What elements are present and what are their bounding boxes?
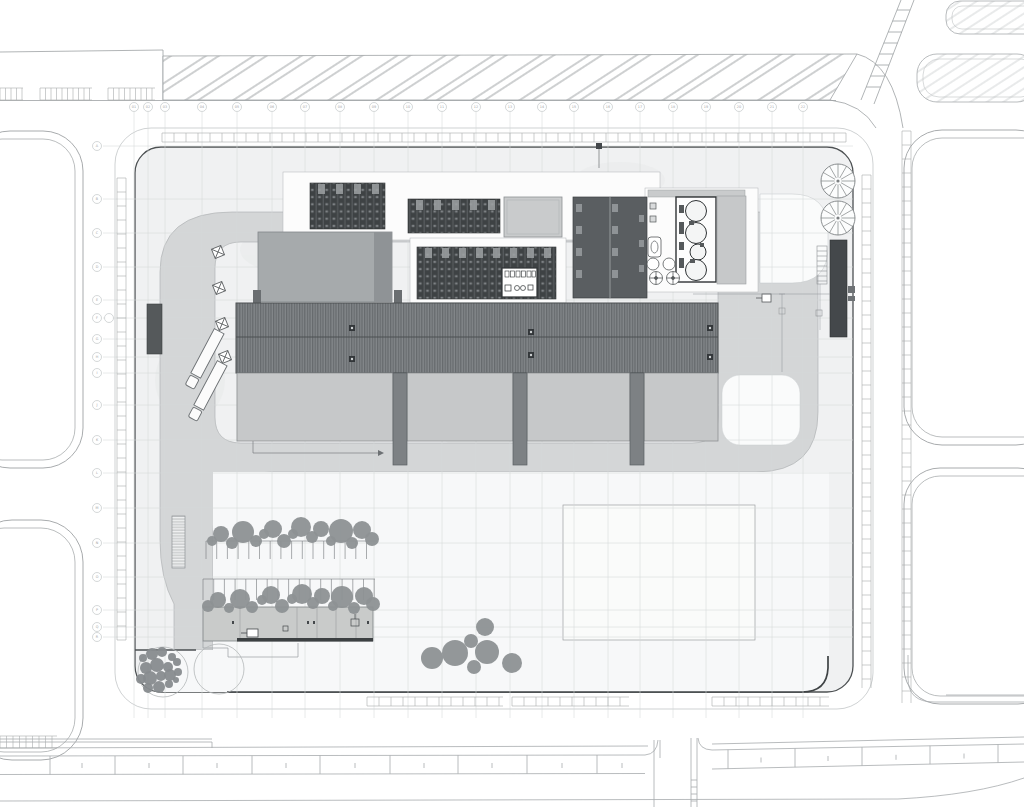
grid-row-label: M — [96, 506, 99, 510]
south-court-outline — [563, 505, 755, 640]
parking-tree — [210, 592, 226, 608]
lawn-tree — [421, 647, 443, 669]
adjacent-parcel-east-south — [904, 468, 1024, 704]
shrub — [173, 658, 181, 666]
paved-pad-southeast — [722, 375, 800, 445]
grid-column-label: 16 — [606, 105, 610, 109]
parking-tree — [313, 521, 329, 537]
grid-row-label: H — [96, 355, 99, 359]
grid-column-label: 02 — [146, 105, 150, 109]
northeast-crosswalk — [861, 0, 914, 104]
adjacent-parcel-west-north — [0, 131, 83, 468]
grid-column-label: 07 — [303, 105, 307, 109]
spoked-tree — [821, 164, 855, 198]
grid-row-label: F — [96, 316, 98, 320]
grid-column-label: 18 — [671, 105, 675, 109]
grid-column-label: 04 — [200, 105, 204, 109]
grid-row-label: L — [96, 471, 98, 475]
shrub — [173, 677, 179, 683]
shrub — [165, 680, 173, 688]
site-plan-svg: 0102030405060708091011121314151617181920… — [0, 0, 1024, 807]
grid-row-label: G — [96, 337, 99, 341]
rooftop-equipment-box — [502, 268, 537, 297]
gate-house — [147, 304, 162, 354]
lawn-tree — [502, 653, 522, 673]
office-block-roof — [258, 232, 392, 302]
grid-row-label: N — [96, 541, 99, 545]
gray-panel-roof — [504, 197, 562, 237]
ramp — [172, 516, 185, 568]
lawn-tree — [467, 660, 481, 674]
spoked-tree — [821, 201, 855, 235]
shrub — [139, 654, 147, 662]
grid-column-label: 08 — [338, 105, 342, 109]
shrub — [157, 647, 167, 657]
lawn-tree — [442, 640, 468, 666]
northeast-road-islands — [917, 1, 1024, 102]
paved-pad-northeast — [760, 194, 828, 283]
grid-row-label: D — [96, 265, 99, 269]
site-plan-drawing: 0102030405060708091011121314151617181920… — [0, 0, 1024, 807]
grid-column-label: 19 — [704, 105, 708, 109]
parking-tree — [365, 532, 379, 546]
grid-column-label: 09 — [372, 105, 376, 109]
main-hall-ribbed-roof — [236, 294, 771, 373]
lawn-tree — [476, 618, 494, 636]
grid-column-label: 14 — [540, 105, 544, 109]
grid-row-label: I — [97, 371, 98, 375]
shrub — [150, 658, 164, 672]
grid-row-bubble — [105, 314, 114, 323]
grid-column-label: 03 — [163, 105, 167, 109]
parking-tree — [275, 599, 289, 613]
grid-row-label: P — [96, 608, 98, 612]
parking-tree — [213, 526, 229, 542]
parking-tree — [314, 588, 330, 604]
shrub — [153, 681, 165, 693]
parking-tree — [348, 602, 360, 614]
parking-tree — [346, 537, 358, 549]
grid-column-label: 10 — [406, 105, 410, 109]
grid-column-label: 15 — [572, 105, 576, 109]
adjacent-parcel-east-north — [904, 130, 1024, 445]
grid-row-label: Q — [96, 625, 99, 629]
grid-column-label: 20 — [737, 105, 741, 109]
grid-column-label: 06 — [270, 105, 274, 109]
grid-column-label: 12 — [474, 105, 478, 109]
shrub — [143, 683, 153, 693]
grid-column-label: 17 — [638, 105, 642, 109]
parking-tree — [366, 597, 380, 611]
adjacent-parcel-west-south — [0, 520, 83, 760]
parking-tree — [264, 520, 282, 538]
grid-column-label: 13 — [508, 105, 512, 109]
grid-column-label: 01 — [132, 105, 136, 109]
parking-tree — [246, 601, 258, 613]
grid-row-label: E — [96, 298, 98, 302]
grid-row-label: O — [96, 575, 99, 579]
grid-column-label: 11 — [440, 105, 444, 109]
shrub — [174, 668, 182, 676]
grid-column-label: 22 — [801, 105, 805, 109]
grid-column-label: 05 — [235, 105, 239, 109]
lawn-tree — [464, 634, 478, 648]
lawn-tree — [475, 640, 499, 664]
grid-column-label: 21 — [770, 105, 774, 109]
grid-row-label: J — [96, 403, 98, 407]
